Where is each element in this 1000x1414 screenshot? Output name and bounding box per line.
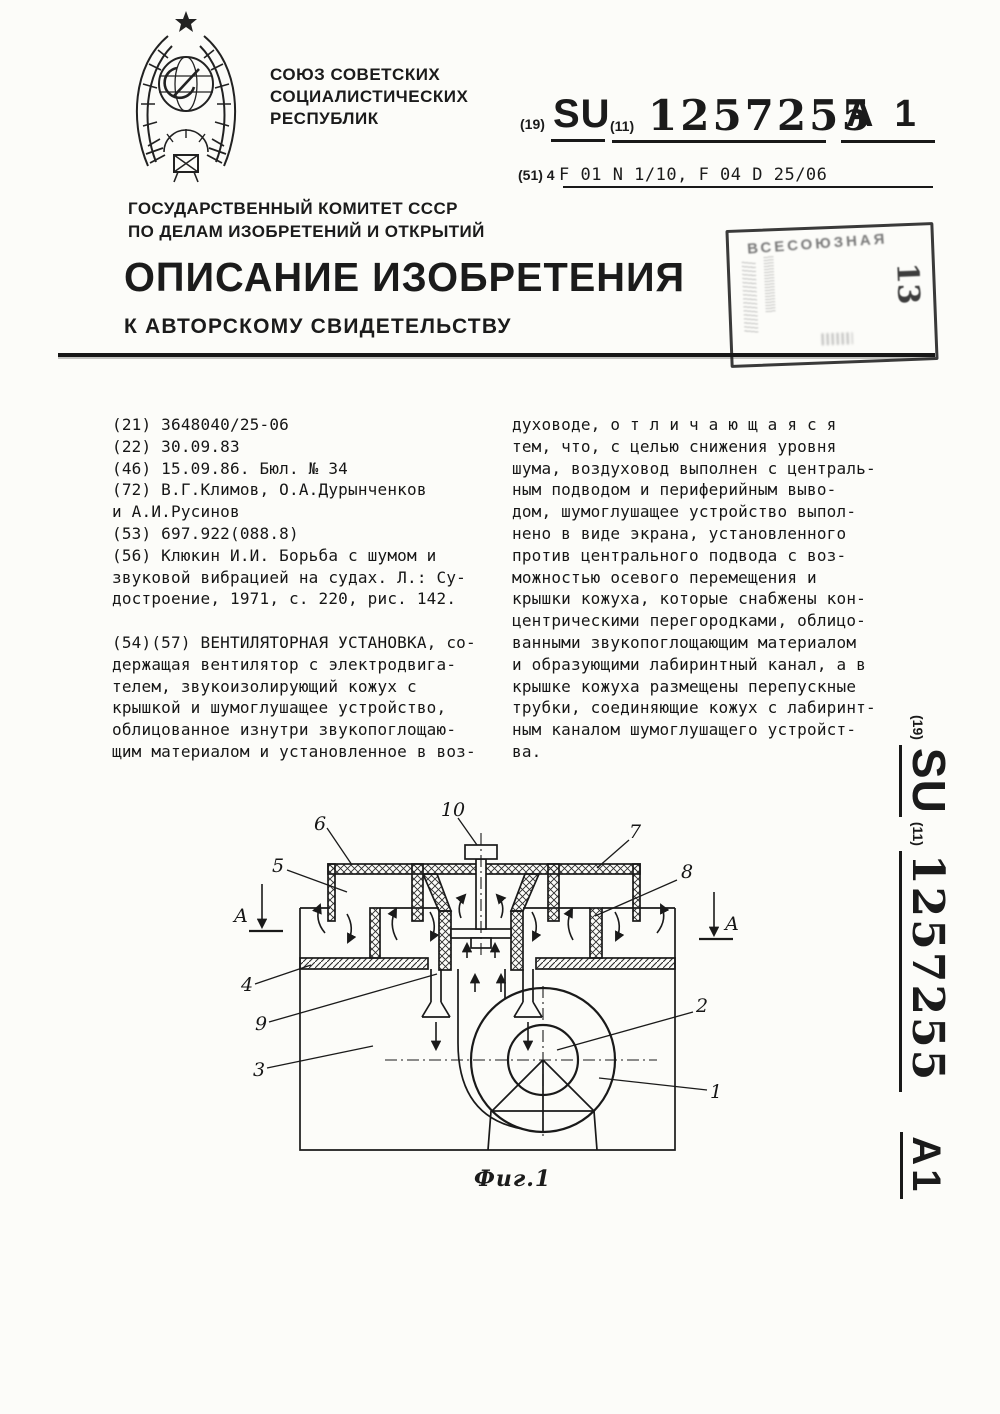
label-3: 3 xyxy=(253,1059,265,1081)
ussr-coat-of-arms-icon xyxy=(126,6,246,184)
kind-code: A 1 xyxy=(846,93,922,136)
stamp-text: ВСЕСОЮЗНАЯ xyxy=(747,230,888,257)
figure-caption: Фиг.1 xyxy=(474,1166,551,1192)
label-10: 10 xyxy=(441,799,465,821)
ipc-codes: F 01 N 1/10, F 04 D 25/06 xyxy=(559,165,827,185)
code-11-label: (11) xyxy=(610,118,634,134)
committee-name: ГОСУДАРСТВЕННЫЙ КОМИТЕТ СССР ПО ДЕЛАМ ИЗ… xyxy=(128,197,485,243)
code-19-label: (19) xyxy=(520,116,545,132)
label-4: 4 xyxy=(240,974,253,996)
stamp-number: 13 xyxy=(889,262,926,305)
underline xyxy=(563,186,933,188)
sidebar-country-code: SU xyxy=(899,745,956,817)
label-2: 2 xyxy=(695,995,708,1017)
stamp-smudge xyxy=(818,332,852,345)
label-1: 1 xyxy=(710,1081,722,1103)
country-code: SU xyxy=(553,92,611,137)
label-7: 7 xyxy=(629,821,642,843)
divider-rule xyxy=(58,353,935,357)
bibliographic-column: (21) 3648040/25-06 (22) 30.09.83 (46) 15… xyxy=(112,414,514,763)
label-5: 5 xyxy=(272,855,284,877)
page-title: ОПИСАНИЕ ИЗОБРЕТЕНИЯ xyxy=(124,254,685,301)
document-number: 1257255 xyxy=(648,91,874,140)
stamp-smudge xyxy=(742,260,759,334)
underline xyxy=(612,140,826,143)
registration-stamp: ВСЕСОЮЗНАЯ 13 xyxy=(725,222,938,368)
ipc-prefix: (51) 4 xyxy=(518,167,555,183)
ussr-name: СОЮЗ СОВЕТСКИХ СОЦИАЛИСТИЧЕСКИХ РЕСПУБЛИ… xyxy=(270,64,468,130)
label-6: 6 xyxy=(314,813,326,835)
claims-column: духоводе, о т л и ч а ю щ а я с я тем, ч… xyxy=(512,414,922,763)
sidebar-document-id: (19) SU (11) 1257255 A1 xyxy=(899,710,956,1199)
label-8: 8 xyxy=(681,861,693,883)
page-subtitle: К АВТОРСКОМУ СВИДЕТЕЛЬСТВУ xyxy=(124,315,512,339)
section-letter-left: А xyxy=(232,905,248,927)
section-letter-right: А xyxy=(723,913,739,935)
sidebar-document-number: 1257255 xyxy=(899,851,953,1092)
figure-drawing: 6 10 7 5 8 4 9 3 2 1 А А xyxy=(225,788,765,1173)
label-9: 9 xyxy=(255,1013,267,1035)
patent-page: СОЮЗ СОВЕТСКИХ СОЦИАЛИСТИЧЕСКИХ РЕСПУБЛИ… xyxy=(0,0,1000,1414)
sidebar-kind-code: A1 xyxy=(900,1132,948,1199)
ipc-classification: (51) 4 F 01 N 1/10, F 04 D 25/06 xyxy=(518,165,827,185)
underline xyxy=(841,140,935,143)
underline xyxy=(551,139,605,142)
sidebar-code-11: (11) xyxy=(910,822,926,846)
sidebar-code-19: (19) xyxy=(910,715,926,740)
stamp-smudge xyxy=(763,255,775,313)
